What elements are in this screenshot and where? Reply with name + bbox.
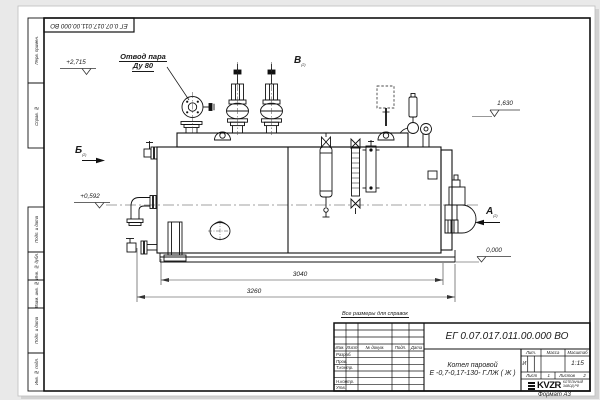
margin-label: Справ. № [34,106,39,126]
elevation-mid-left: +0,592 [72,194,108,201]
scale-value: 1:15 [565,356,590,372]
corner-stamp: ЕГ 0.07.017.011.00.000 ВО [44,18,134,32]
view-label-b: Б(2) [75,145,86,158]
steam-outlet-callout: Отвод пара Ду 80 [112,53,174,72]
mass-header: Масса [541,349,565,356]
corner-stamp-text: ЕГ 0.07.017.011.00.000 ВО [50,22,127,29]
margin-label: Инв. № дубл. [34,253,39,280]
dimension-overall-length: 3260 [232,288,276,295]
format-note: Формат А3 [538,392,571,399]
company-cell: KVZR КОТЕЛЬНЫЙ ЗАВОД РФ [521,379,590,391]
company-tagline-line2: ЗАВОД РФ [563,384,579,388]
margin-box-inv-podl: Инв. № подл. [28,353,44,391]
view-sheet-ref: (2) [82,153,86,157]
lit-header: Лит. [521,349,541,356]
view-sheet-ref: (2) [493,214,497,218]
view-sheet-ref: (2) [301,63,305,67]
elevation-top-left: +2,715 [58,60,94,67]
scale-header: Масштаб [565,349,590,356]
sheet-label: Лист [526,373,537,378]
sheets-value: 2 [583,373,585,378]
col-header-list: Лист [346,344,358,351]
view-label-v: В(2) [294,55,306,68]
product-name-line2: Е -0,7-0,17-130- Г.ЛЖ ( Ж ) [429,370,515,378]
margin-box-inv-dubl: Инв. № дубл. [28,252,44,280]
margin-label: Подп. и дата [34,317,39,344]
margin-box-podp-data-2: Подп. и дата [28,308,44,353]
margin-label: Подп. и дата [34,216,39,243]
company-tagline: КОТЕЛЬНЫЙ ЗАВОД РФ [563,381,583,389]
view-label-a: А(2) [486,206,498,219]
elevation-bottom-right: 0,000 [478,248,510,255]
drawing-sheet: ЕГ 0.07.017.011.00.000 ВО Перв. примен. … [0,0,600,400]
reference-note: Все размеры для справок [341,311,409,318]
role-razrab: Разраб. [334,351,358,358]
sheet-cell: Лист 1 [521,372,555,379]
sheet-value: 1 [547,373,549,378]
sheets-label: Листов [559,373,575,378]
role-utv: Утв. [334,384,358,391]
product-name: Котел паровой Е -0,7-0,17-130- Г.ЛЖ ( Ж … [424,349,521,391]
margin-box-sprav-no: Справ. № [28,83,44,148]
col-header-izm: Изм. [334,344,346,351]
product-name-line1: Котел паровой [447,362,497,370]
margin-label: Перв. примен. [34,36,39,65]
lit-value: И [521,356,528,372]
col-header-data: Дата [409,344,424,351]
col-header-doc: № докум. [358,344,392,351]
margin-box-vzam-inv: Взам. инв. № [28,280,44,308]
margin-label: Инв. № подл. [34,358,39,385]
margin-box-podp-data-1: Подп. и дата [28,207,44,252]
dimension-shell-length: 3040 [278,271,322,278]
callout-line2: Ду 80 [132,62,154,71]
role-tkontr: Т.контр. [334,364,358,371]
company-name: KVZR [537,380,561,391]
margin-box-perv-primen: Перв. примен. [28,18,44,83]
reference-note-text: Все размеры для справок [341,311,409,318]
elevation-top-right: 1,630 [490,101,520,108]
sheets-cell: Листов 2 [555,372,590,379]
title-designation: ЕГ 0.07.017.011.00.000 ВО [424,323,590,349]
col-header-podp: Подп. [392,344,409,351]
margin-label: Взам. инв. № [34,281,39,308]
kvzr-logo-icon [528,381,535,390]
